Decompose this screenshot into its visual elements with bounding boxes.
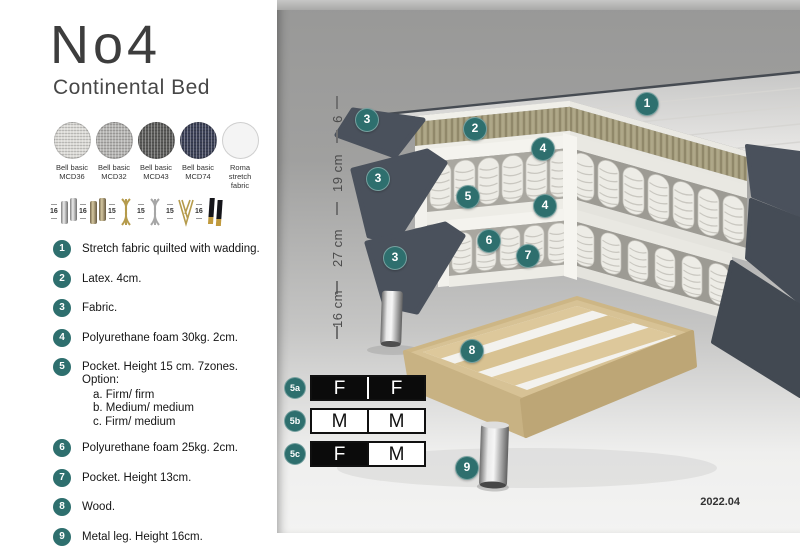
fabric-swatch-circle (138, 122, 175, 159)
swatch-code: MCD74 (182, 172, 214, 181)
callout-5: 5 (456, 185, 480, 209)
firmness-row-badge: 5b (284, 410, 306, 432)
feature-number-badge: 4 (53, 329, 71, 347)
feature-number-badge: 2 (53, 270, 71, 288)
fabric-swatches: Bell basicMCD36 Bell basicMCD32 Bell bas… (51, 122, 261, 190)
firmness-row-badge: 5c (284, 443, 306, 465)
firmness-row-5c: 5c F M (284, 442, 426, 466)
leg-height: 16 (50, 207, 58, 216)
feature-item-8: 8 Wood. (53, 498, 268, 516)
callout-2: 2 (463, 117, 487, 141)
bed-diagram-panel: 1 2 3 3 3 4 4 5 6 7 8 9 6 19 cm 27 cm 16… (277, 0, 800, 533)
cylinder-leg-silver-icon (59, 195, 79, 227)
feature-text: Pocket. Height 13cm. (82, 472, 191, 485)
feature-option: a. Firm/ firm (93, 389, 268, 401)
swatch-code: MCD32 (98, 172, 130, 181)
dimension-label-mattress: 19 cm (328, 143, 346, 203)
twisted-leg-gold-icon (117, 195, 137, 227)
feature-text: Metal leg. Height 16cm. (82, 531, 203, 544)
hairpin-leg-icon (175, 195, 195, 227)
leg-option: 15 (166, 188, 195, 234)
callout-9: 9 (455, 456, 479, 480)
swatch-code: stretch fabric (219, 172, 261, 190)
black-gold-leg-icon (204, 195, 224, 227)
dimension-label-legs: 16 cm (328, 279, 346, 339)
leg-option: 16 (50, 188, 79, 234)
page-title: No4 (50, 14, 161, 76)
feature-item-4: 4 Polyurethane foam 30kg. 2cm. (53, 329, 268, 347)
firmness-cell: F (369, 377, 424, 399)
feature-option: c. Firm/ medium (93, 416, 268, 428)
page-subtitle: Continental Bed (53, 76, 210, 100)
feature-text: Wood. (82, 501, 115, 514)
feature-text: Polyurethane foam 25kg. 2cm. (82, 442, 238, 455)
feature-list: 1 Stretch fabric quilted with wadding. 2… (53, 240, 268, 557)
feature-number-badge: 8 (53, 498, 71, 516)
swatch-item: Bell basicMCD43 (135, 122, 177, 190)
fabric-swatch-circle (54, 122, 91, 159)
dimension-label-top-layer: 6 (328, 89, 346, 149)
swatch-item: Bell basicMCD36 (51, 122, 93, 190)
fabric-swatch-circle (180, 122, 217, 159)
twisted-leg-silver-icon (146, 195, 166, 227)
leg-height: 15 (137, 207, 145, 216)
callout-6: 6 (477, 229, 501, 253)
feature-text: Pocket. Height 15 cm. 7zones. Option: (82, 361, 268, 387)
firmness-cell: M (369, 443, 424, 465)
feature-item-6: 6 Polyurethane foam 25kg. 2cm. (53, 439, 268, 457)
feature-number-badge: 7 (53, 469, 71, 487)
firmness-cell: M (312, 410, 369, 432)
leg-option: 16 (195, 188, 224, 234)
feature-text: Stretch fabric quilted with wadding. (82, 243, 260, 256)
feature-number-badge: 1 (53, 240, 71, 258)
swatch-item: Romastretch fabric (219, 122, 261, 190)
firmness-table-5c: F M (310, 441, 426, 467)
swatch-code: MCD43 (140, 172, 172, 181)
callout-3c: 3 (383, 246, 407, 270)
product-sheet: No4 Continental Bed Bell basicMCD36 Bell… (0, 0, 800, 533)
feature-text: Fabric. (82, 302, 117, 315)
feature-text: Latex. 4cm. (82, 273, 141, 286)
feature-item-5: 5 Pocket. Height 15 cm. 7zones. Option: … (53, 358, 268, 428)
firmness-table-5a: F F (310, 375, 426, 401)
leg-option: 15 (108, 188, 137, 234)
callout-3a: 3 (355, 108, 379, 132)
leg-height: 16 (195, 207, 203, 216)
leg-height: 15 (166, 207, 174, 216)
firmness-row-badge: 5a (284, 377, 306, 399)
feature-option: b. Medium/ medium (93, 402, 268, 414)
callout-3b: 3 (366, 167, 390, 191)
callout-1: 1 (635, 92, 659, 116)
fabric-swatch-circle (222, 122, 259, 159)
feature-item-7: 7 Pocket. Height 13cm. (53, 469, 268, 487)
firmness-row-5a: 5a F F (284, 376, 426, 400)
firmness-table-5b: M M (310, 408, 426, 434)
swatch-item: Bell basicMCD74 (177, 122, 219, 190)
feature-text: Polyurethane foam 30kg. 2cm. (82, 332, 238, 345)
swatch-code: MCD36 (56, 172, 88, 181)
info-panel: No4 Continental Bed Bell basicMCD36 Bell… (0, 0, 277, 533)
callout-7: 7 (516, 244, 540, 268)
dimension-label-divan: 27 cm (328, 218, 346, 278)
callout-4a: 4 (531, 137, 555, 161)
leg-option: 16 (79, 188, 108, 234)
callout-4b: 4 (533, 194, 557, 218)
swatch-name: Bell basic (140, 163, 172, 172)
cylinder-leg-brass-icon (88, 195, 108, 227)
feature-item-9: 9 Metal leg. Height 16cm. (53, 528, 268, 546)
leg-height: 16 (79, 207, 87, 216)
swatch-name: Bell basic (98, 163, 130, 172)
feature-item-2: 2 Latex. 4cm. (53, 270, 268, 288)
swatch-item: Bell basicMCD32 (93, 122, 135, 190)
feature-number-badge: 3 (53, 299, 71, 317)
fabric-swatch-circle (96, 122, 133, 159)
leg-option: 15 (137, 188, 166, 234)
version-label: 2022.04 (700, 496, 740, 508)
firmness-cell: M (369, 410, 424, 432)
feature-number-badge: 5 (53, 358, 71, 376)
firmness-cell: F (312, 377, 369, 399)
swatch-name: Bell basic (56, 163, 88, 172)
dimension-tick (336, 202, 338, 215)
feature-item-1: 1 Stretch fabric quilted with wadding. (53, 240, 268, 258)
feature-number-badge: 9 (53, 528, 71, 546)
callout-8: 8 (460, 339, 484, 363)
leg-options: 16 16 15 15 (50, 188, 224, 234)
swatch-name: Roma (219, 163, 261, 172)
firmness-row-5b: 5b M M (284, 409, 426, 433)
firmness-cell: F (312, 443, 369, 465)
swatch-name: Bell basic (182, 163, 214, 172)
leg-height: 15 (108, 207, 116, 216)
feature-item-3: 3 Fabric. (53, 299, 268, 317)
feature-number-badge: 6 (53, 439, 71, 457)
